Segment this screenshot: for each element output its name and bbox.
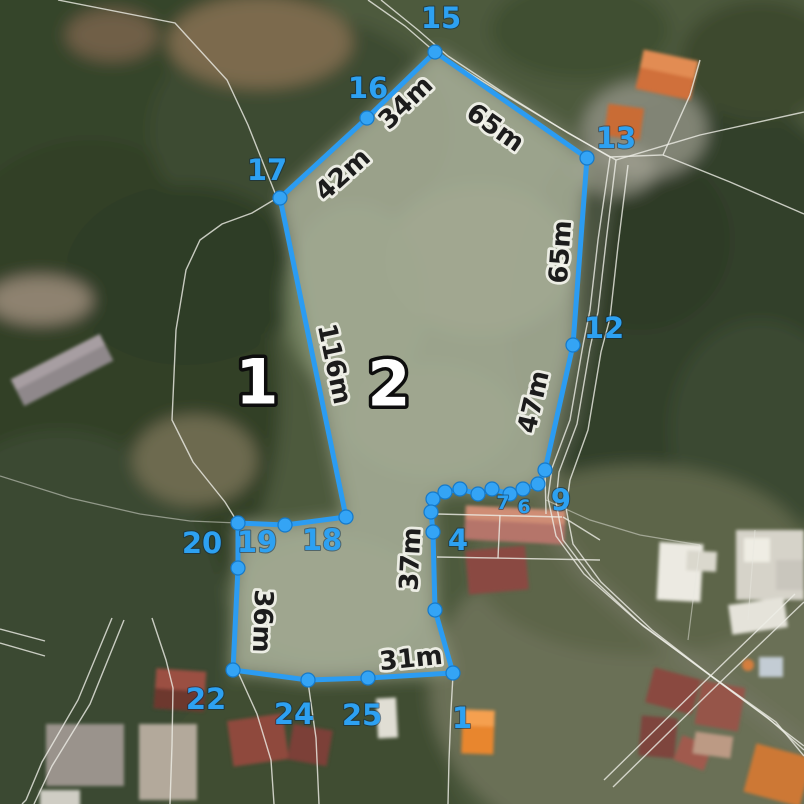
measurement-label: 65m (544, 219, 578, 284)
parcel-number-label: 1 (235, 346, 278, 419)
vertex-dot[interactable] (273, 191, 287, 205)
measurement-label: 37m (394, 527, 427, 592)
satellite-map-view[interactable]: 34m65m42m65m47m116m37m36m31m151617131297… (0, 0, 804, 804)
vertex-dot[interactable] (301, 673, 315, 687)
vertex-dot[interactable] (426, 525, 440, 539)
vertex-number-label: 13 (596, 121, 636, 155)
vertex-dot[interactable] (339, 510, 353, 524)
vertex-number-label: 16 (348, 71, 388, 105)
vertex-number-label: 1 (452, 701, 472, 735)
vertex-number-label: 19 (237, 525, 277, 559)
vertex-dot[interactable] (424, 505, 438, 519)
vertex-number-label: 24 (274, 697, 314, 731)
vertex-dot[interactable] (360, 111, 374, 125)
vertex-number-label: 7 (496, 492, 509, 514)
vertex-dot[interactable] (278, 518, 292, 532)
vertex-dot[interactable] (538, 463, 552, 477)
vertex-number-label: 9 (551, 483, 571, 517)
vertex-dot[interactable] (453, 482, 467, 496)
parcel-number-label: 2 (367, 348, 410, 421)
vertex-dot[interactable] (471, 487, 485, 501)
vertex-dot[interactable] (516, 482, 530, 496)
vertex-dot[interactable] (226, 663, 240, 677)
vertex-dot[interactable] (566, 338, 580, 352)
vertex-dot[interactable] (446, 666, 460, 680)
vertex-number-label: 4 (448, 523, 468, 557)
vertex-dot[interactable] (361, 671, 375, 685)
vertex-dot[interactable] (580, 151, 594, 165)
vertex-number-label: 18 (302, 523, 342, 557)
vertex-number-label: 20 (182, 526, 222, 560)
vertex-dot[interactable] (531, 477, 545, 491)
vertex-dot[interactable] (428, 603, 442, 617)
vertex-number-label: 22 (186, 682, 226, 716)
vertex-dot[interactable] (428, 45, 442, 59)
vertex-dot[interactable] (231, 561, 245, 575)
vertex-dot[interactable] (426, 492, 440, 506)
vertex-number-label: 6 (517, 496, 530, 518)
vertex-number-label: 12 (584, 311, 624, 345)
vertex-number-label: 17 (247, 153, 287, 187)
vertex-number-label: 15 (421, 1, 461, 35)
measurement-label: 36m (246, 589, 278, 653)
vertex-number-label: 25 (342, 698, 382, 732)
satellite-map-image: 34m65m42m65m47m116m37m36m31m151617131297… (0, 0, 804, 804)
